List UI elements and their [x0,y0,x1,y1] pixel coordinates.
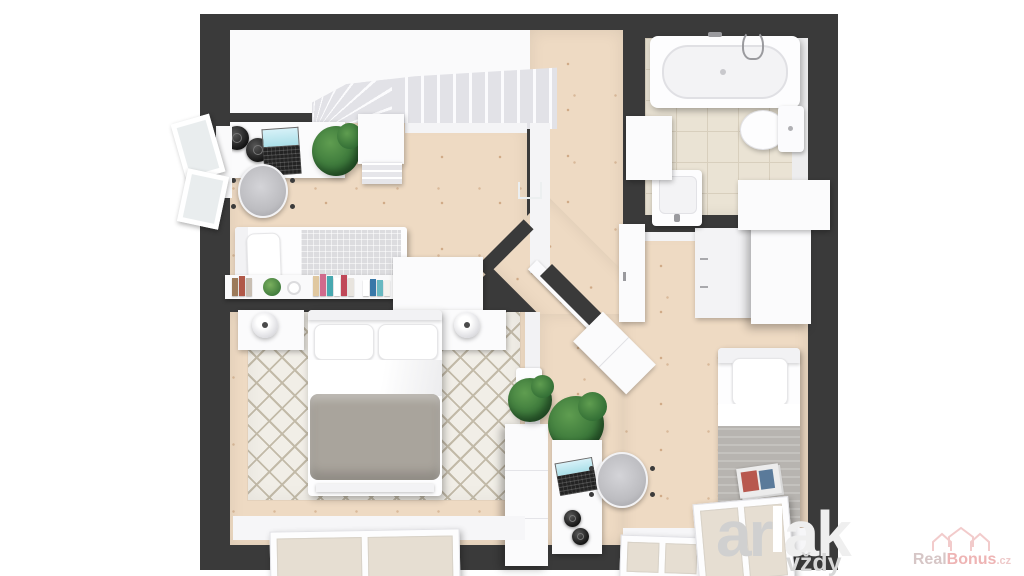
faucet-icon [708,32,722,37]
book [363,280,369,296]
drawer-handle-icon [700,258,708,260]
double-bed [308,310,442,496]
bed-duvet [310,394,440,480]
floorplan-render: ar ak vždy RealBonus.cz [0,0,1024,576]
watermark-divider [773,506,782,552]
bathtub-drain-icon [720,69,726,75]
book [370,279,376,296]
sink-basin [659,176,697,214]
bathroom-cabinet [738,180,830,230]
speaker-icon [572,528,589,545]
book [327,276,333,296]
shower-hose-icon [742,30,764,60]
shelf-plant-icon [263,278,281,296]
right-bedroom-door-leaf [619,224,645,322]
bed-sheet [718,404,800,426]
left-bedroom-top-wall-face [405,123,527,133]
step-stool [362,162,402,184]
book [377,280,383,296]
book [341,275,347,296]
staircase-hall-floor [230,30,530,113]
brand-tld: .cz [996,555,1011,567]
toilet-tank [778,106,804,152]
book [348,278,354,296]
potted-plant-icon [508,378,552,422]
window-pane [664,543,697,574]
brand-logo: RealBonus.cz [902,526,1022,568]
right-wardrobe-low [695,228,751,318]
book [313,276,319,296]
floorplan-outline [200,14,838,570]
flush-button-icon [788,126,793,131]
dresser-left-bedroom [393,257,483,317]
bed-pillow [732,358,788,406]
brand-text: RealBonus.cz [902,552,1022,568]
book [232,278,238,296]
watermark-text-left: ar [716,502,771,566]
bathtub [650,36,800,108]
bed-headboard [308,310,442,320]
bed-sheet [308,360,442,396]
faucet-icon [674,214,680,222]
bed-pillow [378,324,438,360]
book [384,280,390,296]
speaker-icon [564,510,581,527]
window-hall-bottom [619,535,704,576]
cabinet-divider [505,470,548,471]
bed-pillow [314,324,374,360]
door-handle-icon [623,272,626,281]
wall-cabinet-left [358,114,404,164]
window-pane [277,537,363,576]
radiator-icon [518,182,542,199]
right-wardrobe-tall [751,216,811,324]
watermark-tagline: vždy [786,549,842,576]
table-lamp-icon [454,312,480,338]
magazine-cover [759,469,776,490]
staircase-treads [312,63,557,129]
window-pane [368,535,454,576]
cabinet-divider [599,337,629,367]
book [246,278,252,296]
brand-word-bonus: Bonus [947,551,997,568]
drawer-handle-icon [700,286,708,288]
window-master-bedroom [270,528,461,576]
bathroom-shelf [626,116,672,180]
brand-word-real: Real [913,551,947,568]
bowl [287,281,301,295]
magazines [736,463,782,499]
window-pane [626,542,659,573]
bed-bench [316,484,434,492]
laptop-nook [555,457,598,495]
houses-icon [930,526,994,552]
tall-cabinet-master [505,424,548,566]
book [239,276,245,296]
bookshelf [225,275,407,299]
office-chair-nook [596,452,648,508]
book [334,278,340,296]
book [320,274,326,296]
table-lamp-icon [252,312,278,338]
magazine-cover [741,470,760,492]
potted-plant-icon [312,126,360,176]
office-chair-left [238,164,288,218]
